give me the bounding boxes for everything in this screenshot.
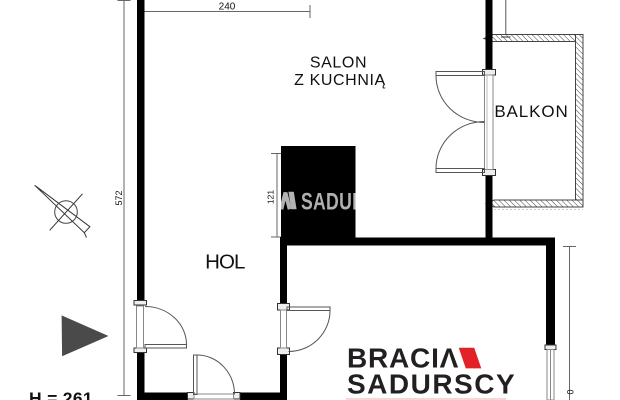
- svg-text:SALON: SALON: [310, 55, 367, 72]
- svg-text:H = 261: H = 261: [29, 389, 93, 400]
- svg-text:SADURSCY: SADURSCY: [347, 368, 516, 399]
- svg-text:121: 121: [266, 190, 276, 204]
- svg-text:BALKON: BALKON: [494, 102, 568, 121]
- svg-text:HOL: HOL: [205, 251, 245, 274]
- svg-text:0: 0: [566, 389, 576, 394]
- svg-text:572: 572: [114, 190, 124, 205]
- svg-text:Z KUCHNIĄ: Z KUCHNIĄ: [294, 72, 386, 89]
- svg-text:240: 240: [219, 2, 236, 13]
